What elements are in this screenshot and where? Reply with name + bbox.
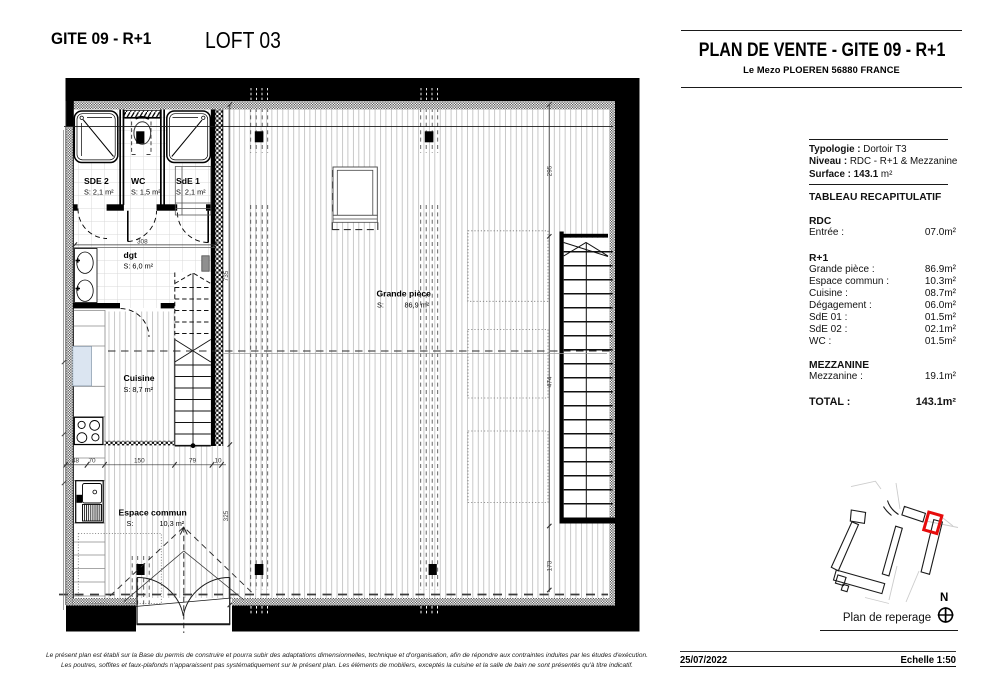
- svg-text:10: 10: [215, 457, 223, 464]
- svg-text:10,3 m²: 10,3 m²: [160, 519, 185, 528]
- svg-text:S: 6,0 m²: S: 6,0 m²: [124, 262, 154, 271]
- svg-text:150: 150: [134, 457, 145, 464]
- svg-text:S:: S:: [377, 301, 384, 310]
- svg-text:S: 2,1 m²: S: 2,1 m²: [84, 188, 114, 197]
- svg-text:173: 173: [547, 560, 554, 571]
- svg-text:70: 70: [89, 457, 97, 464]
- svg-text:S: 8,7 m²: S: 8,7 m²: [124, 385, 154, 394]
- svg-text:dgt: dgt: [124, 250, 137, 260]
- svg-text:474: 474: [547, 376, 554, 387]
- svg-text:79: 79: [189, 457, 197, 464]
- svg-text:308: 308: [137, 239, 148, 246]
- svg-text:SdE 1: SdE 1: [176, 176, 200, 186]
- svg-text:Cuisine: Cuisine: [124, 373, 155, 383]
- svg-text:WC: WC: [131, 176, 145, 186]
- svg-text:735: 735: [223, 270, 230, 281]
- svg-text:48: 48: [72, 457, 80, 464]
- svg-text:S: 2,1 m²: S: 2,1 m²: [176, 188, 206, 197]
- svg-text:Espace commun: Espace commun: [119, 508, 187, 518]
- svg-text:295: 295: [547, 165, 554, 176]
- svg-text:S: 1,5 m²: S: 1,5 m²: [131, 188, 161, 197]
- svg-text:SDE 2: SDE 2: [84, 176, 109, 186]
- svg-text:325: 325: [223, 510, 230, 521]
- svg-text:Grande pièce: Grande pièce: [377, 289, 432, 299]
- svg-text:S:: S:: [127, 519, 134, 528]
- svg-text:86,9 m²: 86,9 m²: [405, 301, 430, 310]
